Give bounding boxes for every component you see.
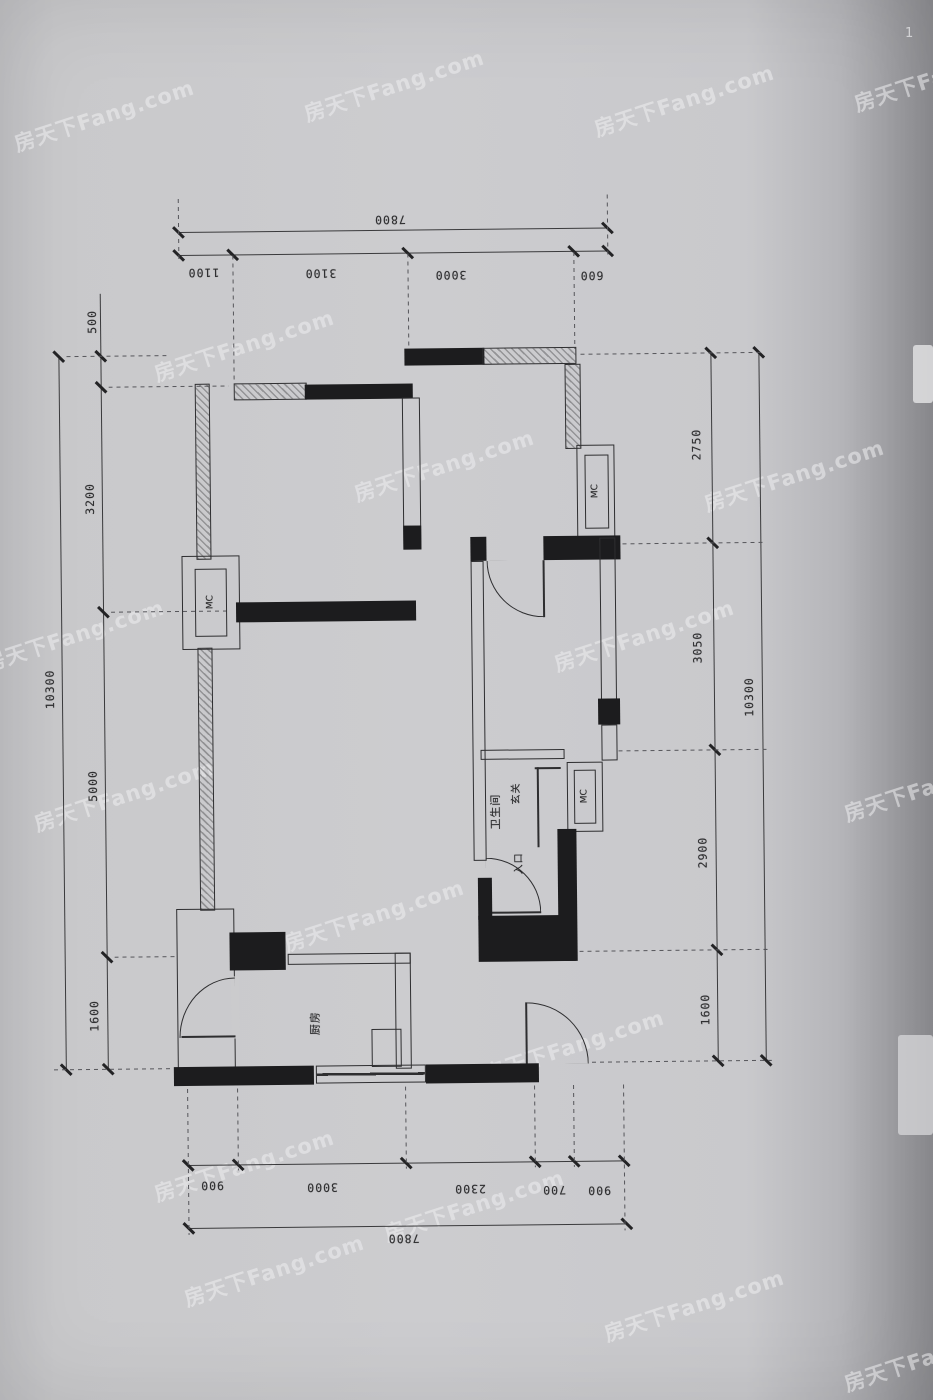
- dim-bottom-seg2: 3000: [292, 1180, 352, 1195]
- fixture-line: [537, 767, 539, 847]
- wall-segment: [404, 348, 484, 366]
- dim-extension-line: [619, 749, 769, 752]
- wall-segment: [598, 698, 620, 724]
- dim-extension-line: [109, 385, 229, 387]
- room-label-foyer: 玄关: [507, 773, 519, 813]
- dim-left-overall: 10300: [42, 654, 57, 724]
- dim-right-seg4: 1600: [698, 979, 713, 1039]
- wall-segment: [478, 915, 575, 962]
- wall-segment: [305, 384, 413, 400]
- wall-segment: [426, 1063, 539, 1083]
- wall-segment: [470, 537, 486, 561]
- dim-top-seg2: 3100: [290, 266, 350, 281]
- dim-top-seg4: 600: [563, 268, 619, 283]
- wall-segment: [403, 525, 421, 549]
- dim-top-overall: 7800: [355, 212, 425, 227]
- dim-extension-line: [54, 1068, 176, 1070]
- dim-extension-line: [592, 1060, 772, 1063]
- ac-box-label: MC: [579, 778, 590, 814]
- dim-line-left-overall: [58, 356, 67, 1070]
- wall-segment: [236, 601, 416, 623]
- dim-right-seg1: 2750: [689, 415, 704, 475]
- partition-wall: [288, 953, 411, 965]
- door-leaf: [486, 911, 541, 913]
- room-label-kitchen: 厨房: [307, 1001, 320, 1045]
- room-label-bathroom: 卫生间: [487, 774, 502, 850]
- dim-bottom-seg3: 2300: [440, 1182, 500, 1197]
- dim-extension-line: [66, 355, 166, 357]
- dim-right-seg2: 3050: [690, 618, 705, 678]
- dim-extension-line: [573, 252, 575, 349]
- dim-extension-line: [534, 1085, 536, 1167]
- door-arc: [487, 560, 545, 618]
- dim-line-top-overall: [178, 227, 608, 233]
- dim-extension-line: [580, 949, 771, 952]
- dim-top-seg1: 1100: [173, 265, 233, 280]
- ac-box-label: MC: [205, 584, 216, 620]
- entrance-door-arc: [526, 1002, 589, 1065]
- dim-extension-layer: [0, 0, 926, 5]
- dim-right-seg3: 2900: [695, 822, 710, 882]
- dim-extension-line: [573, 1085, 575, 1167]
- ac-box-label: MC: [590, 473, 601, 509]
- wall-segment: [174, 1066, 314, 1086]
- dim-bottom-overall: 7800: [369, 1231, 439, 1246]
- door-leaf: [543, 560, 545, 617]
- dim-left-seg4: 1600: [87, 986, 102, 1046]
- dim-right-overall: 10300: [742, 662, 757, 732]
- dim-extension-line: [622, 542, 766, 545]
- wall-segment: [478, 878, 492, 920]
- dim-bottom-seg1: 900: [182, 1178, 242, 1193]
- dim-extension-line: [405, 1087, 407, 1169]
- dim-extension-line: [237, 1088, 239, 1170]
- fixture-line: [535, 767, 561, 769]
- dim-extension-line: [187, 1089, 190, 1235]
- dim-extension-line: [623, 1084, 626, 1230]
- dim-left-seg3: 5000: [86, 756, 101, 816]
- partition-wall: [471, 561, 487, 861]
- kitchen-fixture-box: [371, 1029, 401, 1067]
- exterior-wall: [599, 537, 617, 700]
- window-wall: [195, 384, 212, 560]
- dim-line-bottom-overall: [189, 1223, 628, 1229]
- dim-top-seg3: 3000: [420, 268, 480, 283]
- dim-extension-line: [580, 352, 764, 355]
- partition-wall: [481, 749, 565, 760]
- dim-extension-line: [407, 254, 409, 351]
- exterior-wall: [601, 724, 617, 760]
- window-wall: [316, 1064, 426, 1083]
- dim-line-top-segments: [178, 250, 608, 256]
- photographed-floorplan-page: 1 房天下Fang.com房天下Fang.com房天下Fang.com房天下Fa…: [0, 0, 933, 1400]
- dim-left-seg2: 3200: [83, 469, 98, 529]
- floor-plan-drawing: 7800 1100 3100 3000 600 900 3000 2300 70…: [0, 0, 933, 1400]
- dim-line-right-segments: [710, 352, 719, 1061]
- dim-bottom-seg5: 900: [569, 1183, 629, 1198]
- window-wall: [564, 364, 581, 449]
- dim-tick-layer: [0, 0, 926, 5]
- window-wall: [197, 648, 215, 911]
- dim-left-seg1: 500: [85, 292, 100, 352]
- window-wall: [482, 347, 576, 365]
- wall-segment: [229, 932, 285, 971]
- dim-line-right-overall: [758, 352, 767, 1061]
- window-wall: [234, 383, 307, 401]
- room-label-entrance: 入口: [510, 843, 522, 883]
- dim-extension-line: [115, 956, 175, 958]
